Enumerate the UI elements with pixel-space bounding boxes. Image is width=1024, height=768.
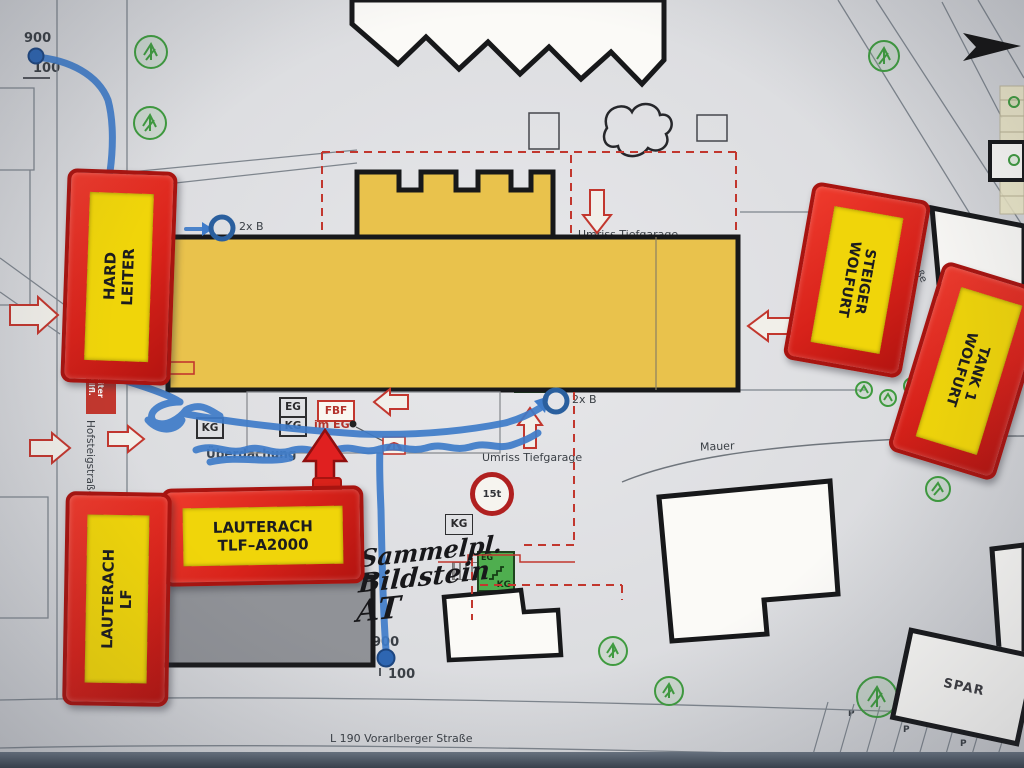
- vehicle-label: HARDLEITER: [84, 192, 154, 362]
- vehicle-block-lauterach-lf[interactable]: LAUTERACHLF: [62, 491, 172, 707]
- photo-edge: [0, 752, 1024, 768]
- vehicle-label: LAUTERACHLF: [85, 514, 150, 683]
- vehicle-block-hard-leiter[interactable]: HARDLEITER: [60, 168, 177, 386]
- vehicle-label: WOLFURTSTEIGER: [811, 206, 904, 354]
- north-arrow-icon: [963, 33, 1021, 61]
- haus1-buildings: [168, 172, 738, 390]
- site-plan-photo: 900 100 900 100 2x B 2x B Umriss Tiefgar…: [0, 0, 1024, 768]
- vehicle-block-lauterach-tlf[interactable]: LAUTERACHTLF–A2000: [161, 485, 365, 587]
- sketch-blob: [604, 104, 672, 156]
- vehicle-label: WOLFURTTANK 1: [916, 287, 1023, 455]
- rohbau-building: [157, 577, 373, 665]
- small-outlines: [529, 113, 727, 149]
- weight-limit-sign: 15t: [470, 472, 514, 516]
- handwritten-note: Sammelpl. Bildstein AT: [356, 532, 503, 628]
- vehicle-label: LAUTERACHTLF–A2000: [183, 506, 344, 567]
